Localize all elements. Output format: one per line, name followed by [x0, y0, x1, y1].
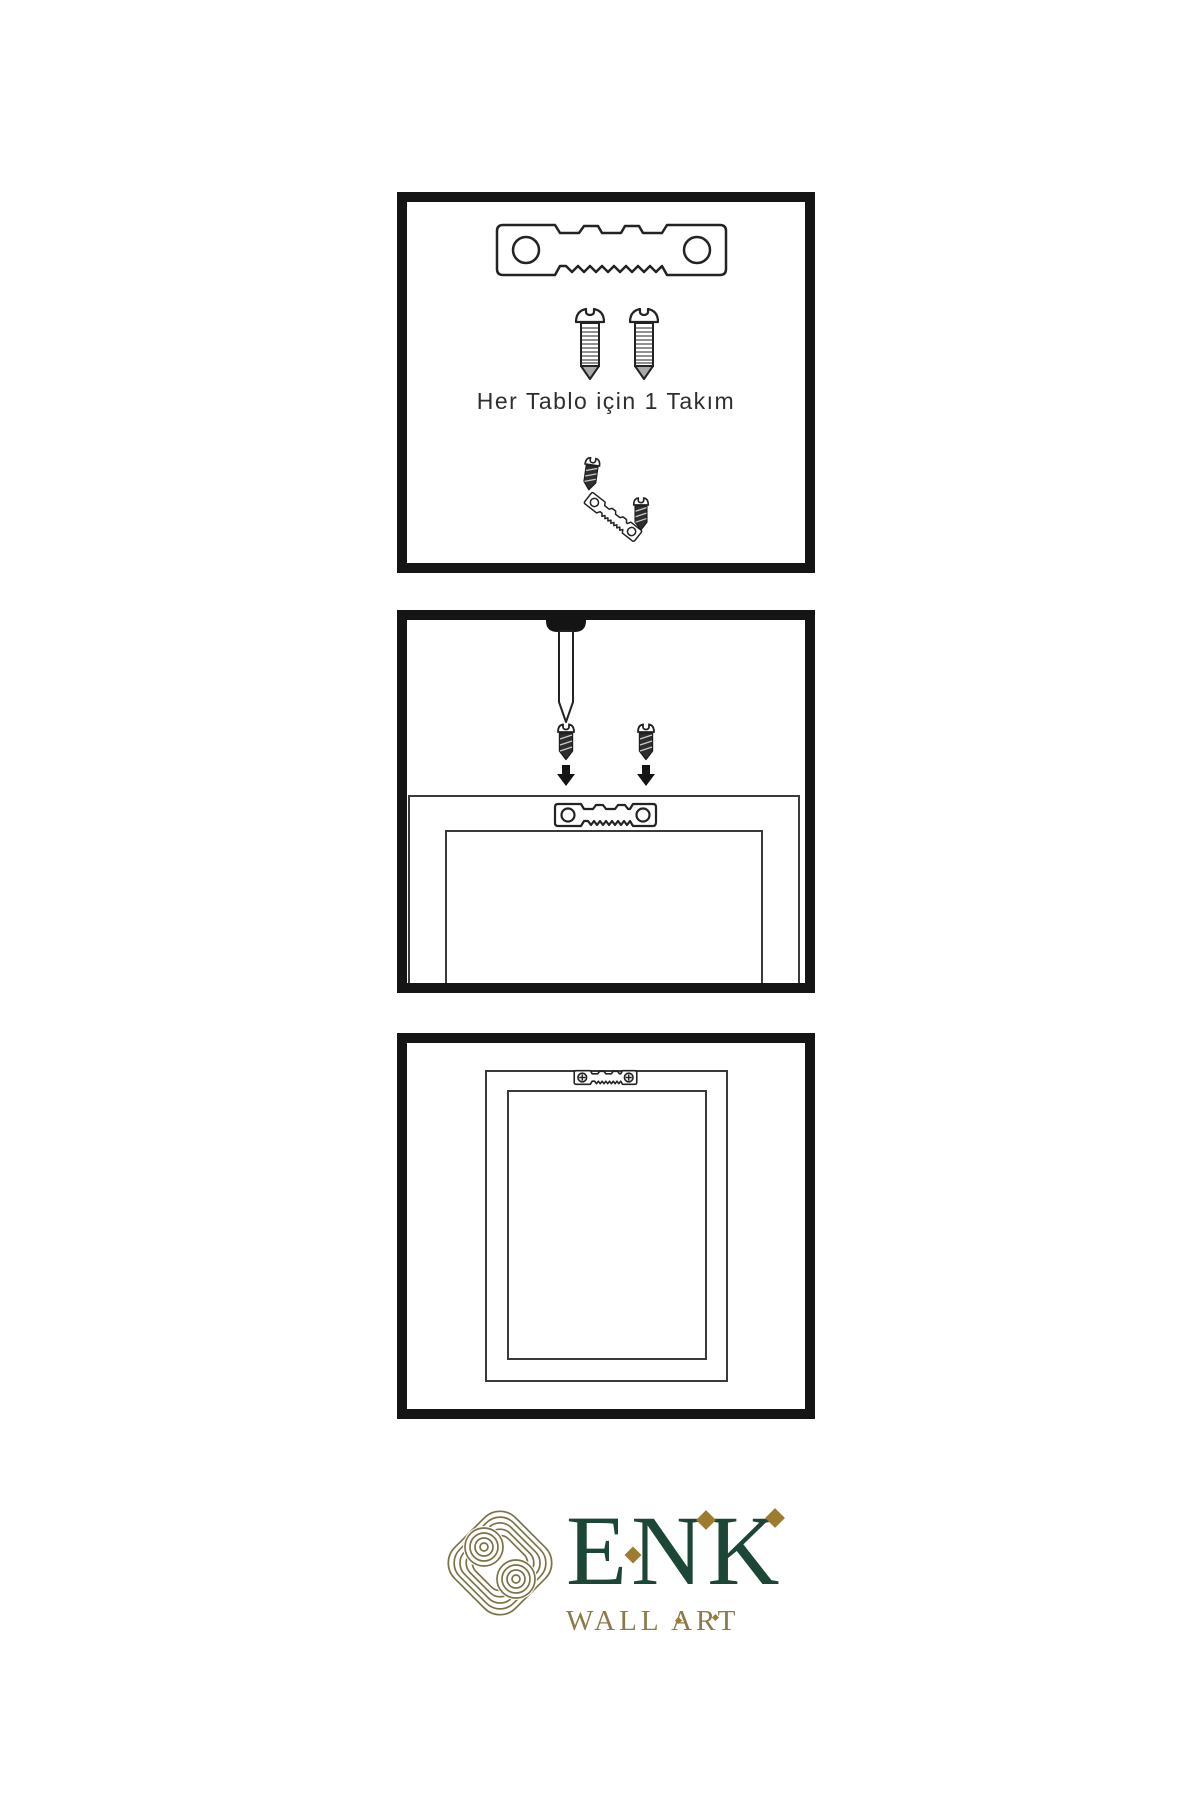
frame-back-inner	[507, 1090, 707, 1360]
sawtooth-hanger-icon	[553, 802, 658, 828]
dark-screw-icon	[635, 723, 657, 761]
screw-icon	[627, 307, 661, 381]
panel-mounted-result	[397, 1033, 815, 1419]
kit-caption: Her Tablo için 1 Takım	[407, 388, 805, 415]
sawtooth-hanger-installed-icon	[573, 1069, 638, 1086]
dark-screw-icon	[555, 723, 577, 761]
instruction-sheet: Her Tablo için 1 Takım	[0, 0, 1200, 1800]
dark-screw-icon	[578, 454, 603, 494]
knot-emblem-icon	[438, 1500, 562, 1626]
brand-subtitle: WALL ART	[566, 1605, 826, 1638]
panel-hardware-kit: Her Tablo için 1 Takım	[397, 192, 815, 573]
frame-back-inner	[445, 830, 763, 983]
dark-screw-icon	[631, 495, 651, 533]
sawtooth-hanger-icon	[495, 223, 728, 277]
panel-installation	[397, 610, 815, 993]
down-arrow-icon	[557, 765, 575, 787]
nail-icon	[544, 618, 588, 728]
down-arrow-icon	[637, 765, 655, 787]
screw-icon	[573, 307, 607, 381]
logo-text-block: ENK WALL ART	[566, 1505, 826, 1638]
